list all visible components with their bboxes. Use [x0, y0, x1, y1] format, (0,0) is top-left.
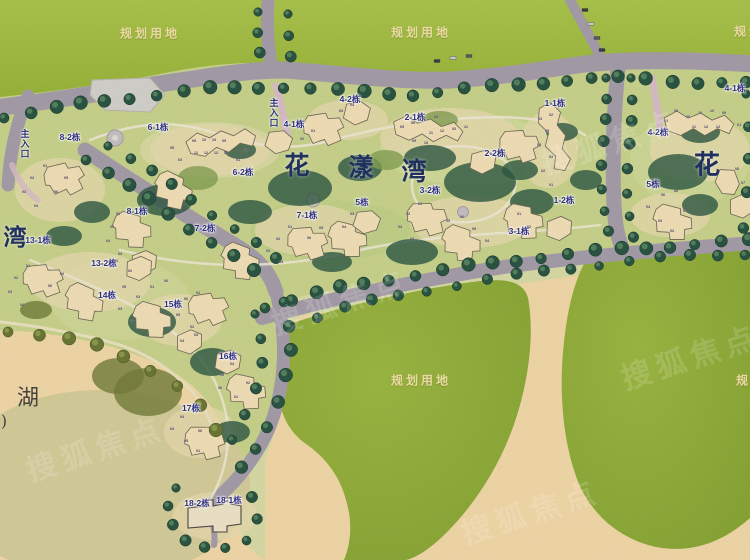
paper-texture [0, 0, 750, 560]
site-plan-map: 规划用地规划用地规划用地规划用地规划用地花漾湾花湾主入口主入口湖)8-2栋6-1… [0, 0, 750, 560]
site-plan-canvas [0, 0, 750, 560]
